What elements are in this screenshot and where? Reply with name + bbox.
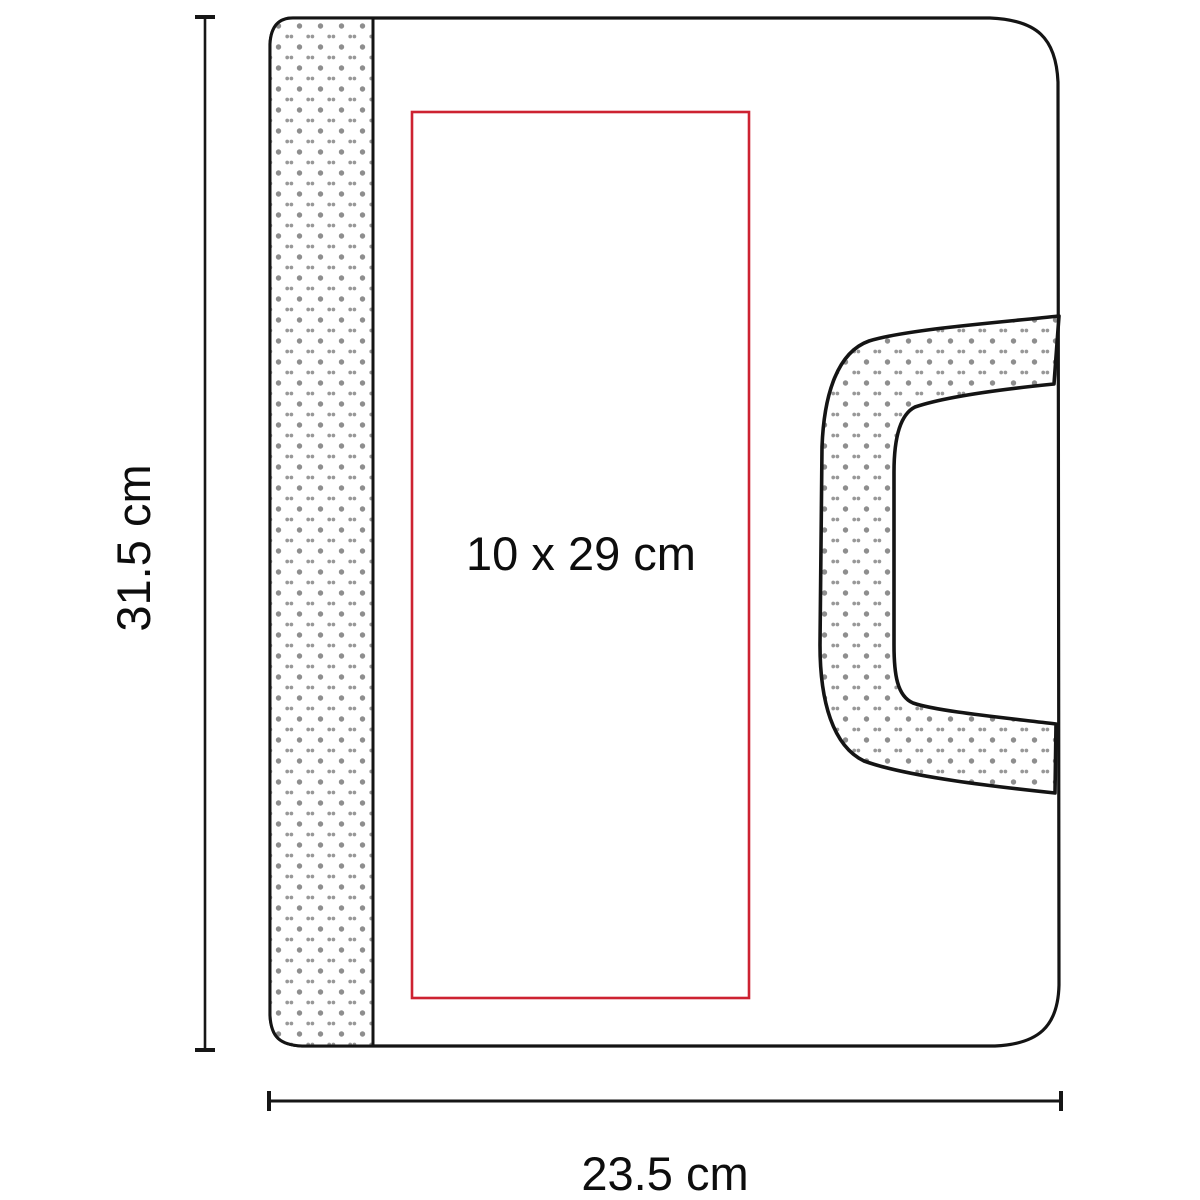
product-diagram-svg: 10 x 29 cm 31.5 cm 23.5 cm: [0, 0, 1200, 1200]
height-dimension-label: 31.5 cm: [107, 464, 160, 631]
print-area-label: 10 x 29 cm: [466, 527, 696, 580]
spine-strip: [270, 18, 373, 1046]
width-dimension-label: 23.5 cm: [581, 1147, 748, 1200]
height-dimension-line: [195, 17, 215, 1050]
diagram-canvas: 10 x 29 cm 31.5 cm 23.5 cm: [0, 0, 1200, 1200]
width-dimension-line: [269, 1091, 1061, 1111]
